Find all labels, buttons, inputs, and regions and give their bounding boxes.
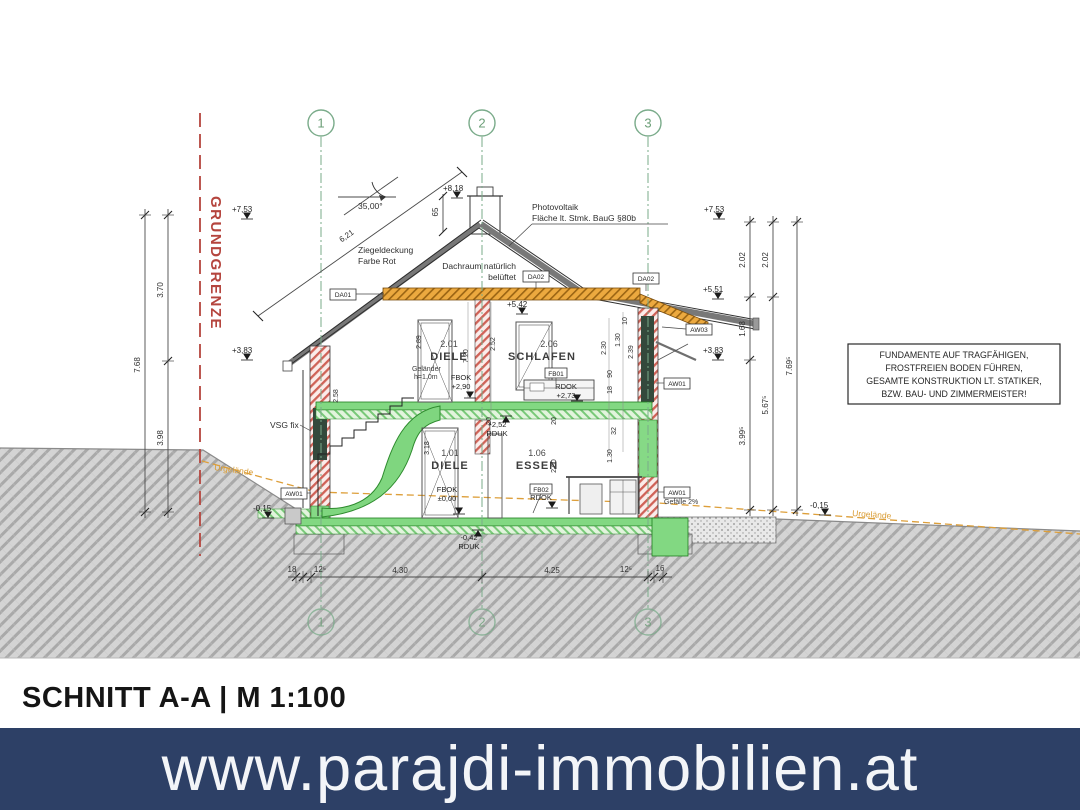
room-name-diele-og: DIELE	[430, 351, 467, 363]
level-eaves-right: +7,53	[704, 205, 725, 214]
dim-i252: 2.52	[490, 337, 497, 351]
tag-aw01-right-upper: AW01	[656, 378, 690, 389]
section-drawing: Urgelände Urgelände GRUNDGRENZE	[0, 0, 1080, 677]
tile-note-1: Ziegeldeckung	[358, 245, 414, 255]
dim-bottom-2: 12⁵	[314, 565, 326, 574]
foundation-left	[294, 534, 344, 554]
room-name-diele-eg: DIELE	[431, 460, 468, 472]
drawing-title: SCHNITT A-A | M 1:100	[22, 682, 346, 715]
gutter-right	[753, 318, 759, 330]
dim-i258: 2.58	[333, 389, 340, 403]
grid-label-2-bottom: 2	[478, 615, 485, 630]
entrance-canopy	[656, 342, 696, 360]
svg-text:AW03: AW03	[690, 327, 708, 334]
level-ground-right: -0,15	[810, 501, 829, 510]
rdok-og-value: +2,73	[557, 391, 576, 400]
level-mid-right: +5,51	[703, 285, 724, 294]
room-number-106: 1.06	[528, 448, 546, 458]
level-ceiling: +5,42	[507, 300, 528, 309]
dim-i318: 3.18	[424, 441, 431, 455]
svg-text:FB01: FB01	[548, 371, 564, 378]
website-url[interactable]: www.parajdi-immobilien.at	[162, 738, 919, 801]
chair	[580, 484, 602, 514]
dim-i32: 32	[611, 427, 618, 435]
tag-aw01-right-lower: AW01	[658, 487, 690, 498]
boundary-label: GRUNDGRENZE	[207, 196, 224, 330]
fbok-og-label: FBOK	[451, 373, 471, 382]
railing-note-2: h=1.0m	[414, 374, 438, 381]
note-line-3: GESAMTE KONSTRUKTION LT. STATIKER,	[866, 376, 1041, 386]
dim-bottom-1: 18	[288, 565, 297, 574]
dim-i10: 10	[622, 317, 629, 325]
level-upper-left: +3,83	[232, 346, 253, 355]
dim-right-b1: 2.02	[761, 252, 770, 268]
attic-note-1: Dachraum natürlich	[442, 261, 516, 271]
level-eaves-left: +7,53	[232, 205, 253, 214]
dim-i90: 90	[607, 370, 614, 378]
grid-label-3-top: 3	[644, 116, 651, 131]
dim-bottom-6: 16	[656, 564, 665, 573]
fbok-og-value: +2,90	[452, 382, 471, 391]
dim-left-lower: 3.98	[156, 430, 165, 446]
terrain-label-right: Urgelände	[852, 508, 892, 521]
dim-i230: 2.30	[601, 341, 608, 355]
dim-i130b: 1.30	[607, 449, 614, 463]
svg-text:DA02: DA02	[528, 274, 545, 281]
dim-bottom-5: 12⁵	[620, 565, 632, 574]
svg-text:AW01: AW01	[668, 381, 686, 388]
grid-label-3-bottom: 3	[644, 615, 651, 630]
interior-wall-upper	[475, 300, 490, 402]
room-name-essen: ESSEN	[516, 460, 558, 472]
dim-i239: 2.39	[628, 345, 635, 359]
pv-note-1: Photovoltaik	[532, 202, 579, 212]
room-number-206: 2.06	[540, 339, 558, 349]
grid-label-2-top: 2	[478, 116, 485, 131]
dim-left-total: 7.68	[133, 357, 142, 373]
fbok-eg-label: FBOK	[437, 485, 457, 494]
dim-roof-length: 6,21	[338, 227, 356, 244]
dim-i18: 18	[607, 386, 614, 394]
tag-aw03: AW03	[662, 324, 712, 335]
fbok-eg-value: ±0,00	[438, 494, 457, 503]
dim-right-b2: 5.67⁵	[761, 396, 770, 415]
room-number-201: 2.01	[440, 339, 458, 349]
gutter-left	[283, 361, 292, 371]
level-upper-right: +3,83	[703, 346, 724, 355]
svg-text:DA01: DA01	[335, 292, 352, 299]
svg-text:AW01: AW01	[668, 490, 686, 497]
rduk-eg-label: RDUK	[458, 542, 479, 551]
tile-note-2: Farbe Rot	[358, 256, 396, 266]
ground-terrain	[0, 448, 1080, 658]
foundation-note-box: FUNDAMENTE AUF TRAGFÄHIGEN, FROSTFREIEN …	[848, 344, 1060, 404]
dim-right-a3: 3.99⁵	[738, 427, 747, 446]
tag-da02-mid: DA02	[523, 271, 549, 288]
level-ground-left: -0,15	[253, 504, 272, 513]
rduk-eg-value: -0,42	[460, 533, 477, 542]
dim-ridge-height: 65	[431, 207, 440, 216]
svg-text:FB02: FB02	[533, 487, 549, 494]
dim-right-total: 7.69⁵	[785, 357, 794, 376]
rduk-og-label: RDUK	[486, 429, 507, 438]
grid-label-1-bottom: 1	[317, 615, 324, 630]
slope-note: Gefälle 2%	[664, 499, 698, 506]
room-name-schlafen: SCHLAFEN	[508, 351, 576, 363]
svg-text:AW01: AW01	[285, 491, 303, 498]
level-ridge: +8,18	[443, 184, 464, 193]
note-line-4: BZW. BAU- UND ZIMMERMEISTER!	[881, 389, 1026, 399]
dim-bottom-4: 4.25	[544, 566, 560, 575]
note-line-1: FUNDAMENTE AUF TRAGFÄHIGEN,	[880, 350, 1029, 360]
dim-i289: 2.89	[416, 335, 423, 349]
dim-left-upper: 3.70	[156, 282, 165, 298]
railing-note-1: Geländer	[412, 366, 441, 373]
dim-right-a1: 2.02	[738, 252, 747, 268]
pv-note-2: Fläche lt. Stmk. BauG §80b	[532, 213, 636, 223]
svg-text:DA02: DA02	[638, 276, 655, 283]
grid-label-1-top: 1	[317, 116, 324, 131]
real-estate-plan-page: Urgelände Urgelände GRUNDGRENZE	[0, 0, 1080, 810]
note-line-2: FROSTFREIEN BODEN FÜHREN,	[885, 363, 1022, 373]
roof-angle-label: 35,00°	[358, 201, 383, 211]
room-number-101: 1.01	[441, 448, 459, 458]
attic-note-2: belüftet	[488, 272, 517, 282]
rduk-og-value: +2,52	[488, 420, 507, 429]
website-banner: www.parajdi-immobilien.at	[0, 728, 1080, 810]
vsg-note: VSG fix	[270, 420, 300, 430]
dim-bottom-3: 4.30	[392, 566, 408, 575]
dim-i130a: 1.30	[615, 333, 622, 347]
dim-right-a2: 1.68	[738, 321, 747, 337]
rdok-og-label: RDOK	[555, 382, 577, 391]
tag-aw01-left: AW01	[281, 488, 311, 499]
dim-i20b: 20	[551, 417, 558, 425]
downpipe	[285, 370, 303, 524]
timber-ceiling	[383, 288, 708, 331]
